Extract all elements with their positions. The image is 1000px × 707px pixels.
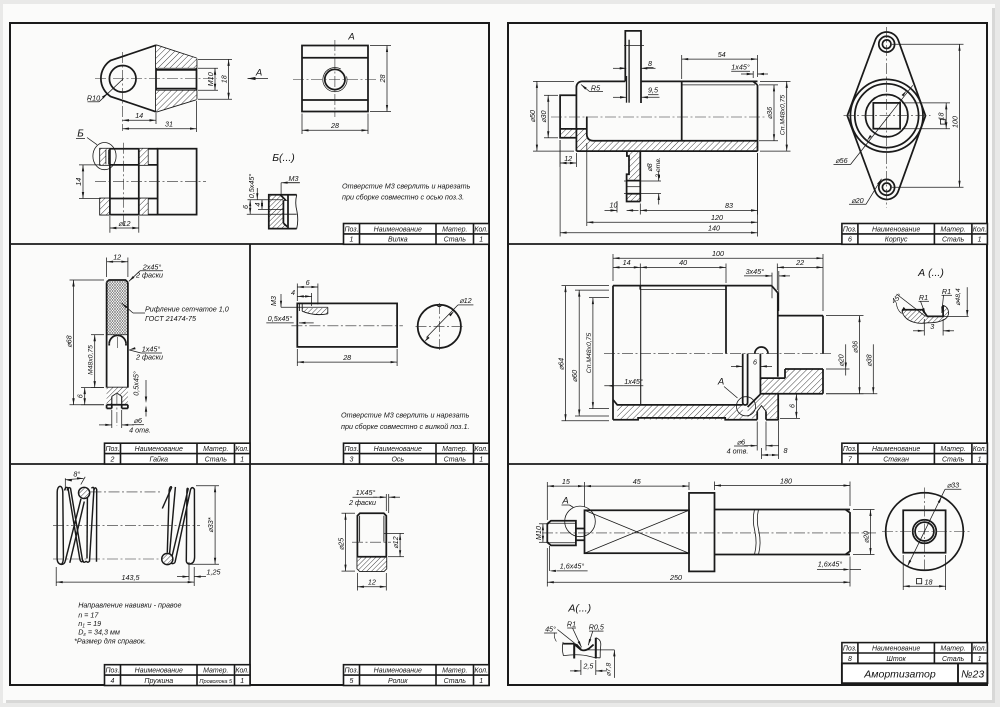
svg-text:8°: 8° xyxy=(73,469,80,478)
svg-text:Наименование: Наименование xyxy=(872,646,920,653)
svg-text:Матер.: Матер. xyxy=(442,226,467,233)
svg-text:⌀6: ⌀6 xyxy=(737,437,745,446)
svg-text:ГОСТ 21474-75: ГОСТ 21474-75 xyxy=(145,314,197,323)
svg-text:Б: Б xyxy=(77,129,84,140)
svg-text:6: 6 xyxy=(848,237,852,244)
svg-text:22: 22 xyxy=(795,258,804,267)
svg-text:Поз.: Поз. xyxy=(843,226,857,233)
svg-text:Наименование: Наименование xyxy=(374,446,422,453)
svg-text:4: 4 xyxy=(253,203,262,207)
svg-text:45°: 45° xyxy=(545,624,556,633)
svg-text:R0,5: R0,5 xyxy=(589,622,605,631)
svg-text:Сп.М48х0,75: Сп.М48х0,75 xyxy=(780,95,787,136)
svg-text:Отверстие М3 сверлить и нареза: Отверстие М3 сверлить и нарезать xyxy=(341,410,470,419)
svg-text:6: 6 xyxy=(787,404,796,408)
svg-text:⌀20: ⌀20 xyxy=(862,531,871,543)
svg-text:1: 1 xyxy=(978,456,982,463)
svg-text:R1: R1 xyxy=(919,293,928,302)
svg-text:Матер.: Матер. xyxy=(442,668,467,675)
svg-text:Проволока 5: Проволока 5 xyxy=(199,679,233,685)
svg-text:2 фаски: 2 фаски xyxy=(135,353,163,362)
svg-text:2 фаски: 2 фаски xyxy=(348,498,376,507)
svg-text:А(...): А(...) xyxy=(567,603,591,615)
svg-text:Рифление сетчатое 1,0: Рифление сетчатое 1,0 xyxy=(145,305,229,314)
svg-text:Поз.: Поз. xyxy=(344,226,358,233)
svg-text:83: 83 xyxy=(725,201,733,210)
svg-text:Матер.: Матер. xyxy=(442,446,467,453)
svg-text:А (...): А (...) xyxy=(917,267,944,279)
svg-text:Кол.: Кол. xyxy=(474,226,488,233)
svg-text:⌀68: ⌀68 xyxy=(65,335,74,347)
svg-text:120: 120 xyxy=(711,213,723,222)
svg-text:3х45°: 3х45° xyxy=(746,267,765,276)
svg-text:Сталь: Сталь xyxy=(205,456,228,463)
svg-text:⌀38: ⌀38 xyxy=(864,354,873,366)
svg-text:10: 10 xyxy=(610,201,618,210)
svg-text:2: 2 xyxy=(110,456,115,463)
svg-text:⌀48,4: ⌀48,4 xyxy=(955,288,962,306)
svg-text:Наименование: Наименование xyxy=(135,668,183,675)
svg-text:100: 100 xyxy=(951,116,960,128)
svg-text:1: 1 xyxy=(350,237,354,244)
svg-text:1,25: 1,25 xyxy=(207,567,222,576)
svg-text:1Х45°: 1Х45° xyxy=(356,488,376,497)
svg-text:143,5: 143,5 xyxy=(122,573,141,582)
svg-text:Кол.: Кол. xyxy=(973,646,987,653)
svg-text:Матер.: Матер. xyxy=(203,668,228,675)
svg-text:⌀12: ⌀12 xyxy=(459,296,471,305)
svg-text:⌀12: ⌀12 xyxy=(391,536,400,548)
svg-text:Наименование: Наименование xyxy=(872,446,920,453)
svg-text:Сталь: Сталь xyxy=(942,656,965,663)
svg-text:А: А xyxy=(255,68,262,79)
svg-text:Поз.: Поз. xyxy=(105,446,119,453)
svg-text:⌀12: ⌀12 xyxy=(118,219,130,228)
svg-text:⌀20: ⌀20 xyxy=(837,354,846,366)
svg-text:Матер.: Матер. xyxy=(940,226,965,233)
svg-text:⌀36: ⌀36 xyxy=(851,341,860,353)
svg-text:28: 28 xyxy=(342,353,351,362)
svg-text:⌀8: ⌀8 xyxy=(645,163,654,171)
svg-text:А: А xyxy=(347,31,354,42)
svg-text:Сталь: Сталь xyxy=(444,456,467,463)
svg-text:Поз.: Поз. xyxy=(105,668,119,675)
svg-text:1х45°: 1х45° xyxy=(731,63,750,72)
svg-text:3: 3 xyxy=(930,322,934,331)
svg-text:Кол.: Кол. xyxy=(235,446,249,453)
svg-text:8: 8 xyxy=(848,656,852,663)
svg-text:250: 250 xyxy=(669,573,682,582)
svg-text:12: 12 xyxy=(113,253,121,262)
svg-text:⌀36: ⌀36 xyxy=(765,107,774,119)
svg-text:Поз.: Поз. xyxy=(843,646,857,653)
svg-text:⌀33*: ⌀33* xyxy=(206,517,215,532)
svg-text:⌀64: ⌀64 xyxy=(557,358,566,370)
svg-text:Пружина: Пружина xyxy=(144,678,173,685)
svg-text:R1: R1 xyxy=(567,619,576,628)
svg-text:Отверстие М3 сверлить и нареза: Отверстие М3 сверлить и нарезать xyxy=(342,181,471,190)
svg-text:Кол.: Кол. xyxy=(973,446,987,453)
svg-text:Ролик: Ролик xyxy=(388,678,408,685)
svg-text:Сталь: Сталь xyxy=(444,678,467,685)
svg-text:1х45°: 1х45° xyxy=(624,377,643,386)
svg-text:М3: М3 xyxy=(269,296,278,306)
svg-text:1: 1 xyxy=(240,456,244,463)
svg-text:Поз.: Поз. xyxy=(843,446,857,453)
svg-text:1: 1 xyxy=(479,678,483,685)
svg-text:140: 140 xyxy=(708,224,720,233)
svg-text:⌀6: ⌀6 xyxy=(134,416,142,425)
svg-text:⌀50: ⌀50 xyxy=(528,110,537,122)
svg-text:Амортизатор: Амортизатор xyxy=(863,669,936,681)
svg-text:№23: №23 xyxy=(961,669,984,681)
svg-text:Матер.: Матер. xyxy=(203,446,228,453)
svg-text:4 отв.: 4 отв. xyxy=(727,446,749,455)
svg-text:Матер.: Матер. xyxy=(940,446,965,453)
svg-text:Ось: Ось xyxy=(391,456,404,463)
svg-text:0,5х45°: 0,5х45° xyxy=(268,314,293,323)
svg-text:Кол.: Кол. xyxy=(235,668,249,675)
svg-text:2,5: 2,5 xyxy=(582,662,594,671)
svg-text:М10: М10 xyxy=(206,72,215,86)
svg-text:14: 14 xyxy=(623,258,631,267)
svg-text:Кол.: Кол. xyxy=(973,226,987,233)
svg-text:12: 12 xyxy=(564,154,572,163)
svg-text:54: 54 xyxy=(718,50,726,59)
svg-text:Наименование: Наименование xyxy=(374,668,422,675)
svg-text:14: 14 xyxy=(135,111,143,120)
svg-text:Наименование: Наименование xyxy=(872,226,920,233)
svg-text:Сталь: Сталь xyxy=(444,237,467,244)
svg-text:0,5х45°: 0,5х45° xyxy=(247,174,256,199)
svg-text:Наименование: Наименование xyxy=(374,226,422,233)
svg-text:⌀7,8: ⌀7,8 xyxy=(606,663,613,677)
svg-text:8: 8 xyxy=(784,446,788,455)
svg-text:40: 40 xyxy=(679,258,687,267)
svg-text:R1: R1 xyxy=(942,287,951,296)
svg-text:3: 3 xyxy=(350,456,354,463)
svg-text:12: 12 xyxy=(368,578,376,587)
svg-text:Шток: Шток xyxy=(886,656,906,663)
svg-text:Сп.М48х0,75: Сп.М48х0,75 xyxy=(586,333,593,374)
svg-text:31: 31 xyxy=(165,120,173,129)
svg-text:5: 5 xyxy=(350,678,354,685)
svg-text:⌀20: ⌀20 xyxy=(851,196,863,205)
svg-text:Корпус: Корпус xyxy=(885,237,908,244)
svg-text:18: 18 xyxy=(925,577,933,586)
svg-text:1: 1 xyxy=(479,237,483,244)
svg-text:⌀56: ⌀56 xyxy=(835,156,847,165)
svg-text:4: 4 xyxy=(111,678,115,685)
svg-text:1: 1 xyxy=(240,678,244,685)
svg-text:0,5х45°: 0,5х45° xyxy=(131,371,140,396)
svg-text:Стакан: Стакан xyxy=(883,456,909,463)
svg-text:М10: М10 xyxy=(534,526,543,540)
svg-text:Поз.: Поз. xyxy=(344,446,358,453)
svg-text:Вилка: Вилка xyxy=(388,237,408,244)
svg-text:6: 6 xyxy=(753,357,757,366)
svg-text:45: 45 xyxy=(633,477,642,486)
svg-text:⌀33: ⌀33 xyxy=(947,480,959,489)
svg-text:Матер.: Матер. xyxy=(940,646,965,653)
svg-text:6: 6 xyxy=(76,394,85,398)
svg-text:1: 1 xyxy=(479,456,483,463)
svg-text:при сборке совместно с вилкой: при сборке совместно с вилкой поз.1. xyxy=(341,422,470,431)
svg-text:Направление навивки - правое: Направление навивки - правое xyxy=(78,601,181,610)
svg-text:28: 28 xyxy=(378,75,387,84)
svg-text:1,6х45°: 1,6х45° xyxy=(818,560,843,569)
svg-text:4: 4 xyxy=(291,288,295,297)
svg-text:28: 28 xyxy=(330,121,339,130)
svg-text:⌀30: ⌀30 xyxy=(539,110,548,122)
svg-text:Гайка: Гайка xyxy=(150,455,169,463)
svg-text:9,5: 9,5 xyxy=(648,86,659,95)
svg-text:Сталь: Сталь xyxy=(942,456,965,463)
svg-text:6: 6 xyxy=(241,205,250,209)
svg-text:*Размер для справок.: *Размер для справок. xyxy=(74,637,146,646)
svg-text:Кол.: Кол. xyxy=(474,446,488,453)
svg-text:Б(...): Б(...) xyxy=(272,152,295,164)
svg-text:⌀60: ⌀60 xyxy=(570,370,579,382)
svg-text:Поз.: Поз. xyxy=(344,668,358,675)
svg-text:8: 8 xyxy=(648,59,652,68)
svg-text:М3: М3 xyxy=(289,174,299,183)
svg-text:Наименование: Наименование xyxy=(135,446,183,453)
svg-text:Сталь: Сталь xyxy=(942,237,965,244)
svg-text:1: 1 xyxy=(978,656,982,663)
svg-text:1,6х45°: 1,6х45° xyxy=(560,561,585,570)
svg-text:15: 15 xyxy=(562,477,571,486)
svg-text:при сборке совместно с осью по: при сборке совместно с осью поз.3. xyxy=(342,193,464,202)
svg-text:14: 14 xyxy=(74,178,83,186)
svg-text:180: 180 xyxy=(780,476,792,485)
svg-text:Кол.: Кол. xyxy=(474,668,488,675)
svg-text:1: 1 xyxy=(978,237,982,244)
svg-text:⌀25: ⌀25 xyxy=(337,537,346,550)
svg-text:4 отв.: 4 отв. xyxy=(129,425,151,434)
svg-text:6: 6 xyxy=(306,278,310,287)
svg-text:А: А xyxy=(717,377,724,388)
svg-text:18: 18 xyxy=(220,75,229,83)
svg-text:R10: R10 xyxy=(87,94,100,103)
svg-text:М48х0,75: М48х0,75 xyxy=(88,345,95,375)
svg-text:100: 100 xyxy=(712,249,724,258)
